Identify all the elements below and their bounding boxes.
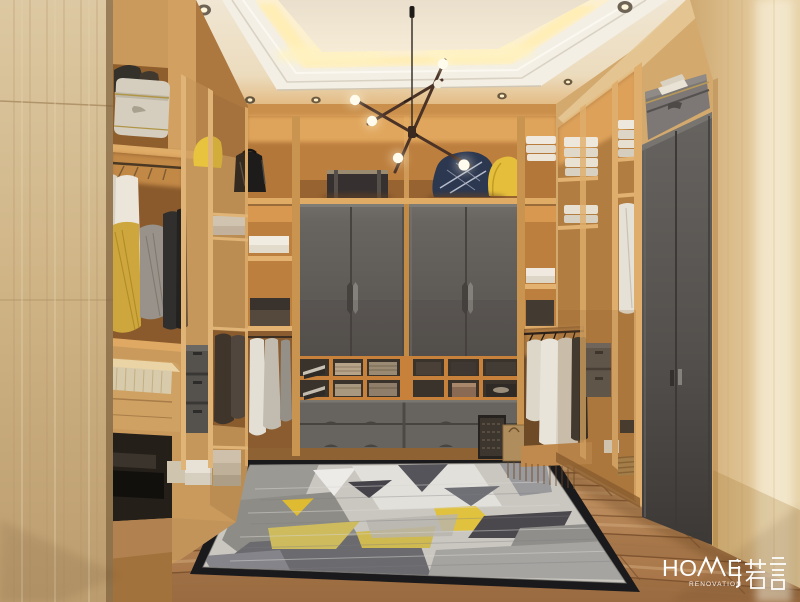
svg-text:HO: HO (662, 555, 698, 581)
svg-text:RENOVATION: RENOVATION (689, 581, 742, 588)
svg-text:E: E (727, 555, 742, 581)
